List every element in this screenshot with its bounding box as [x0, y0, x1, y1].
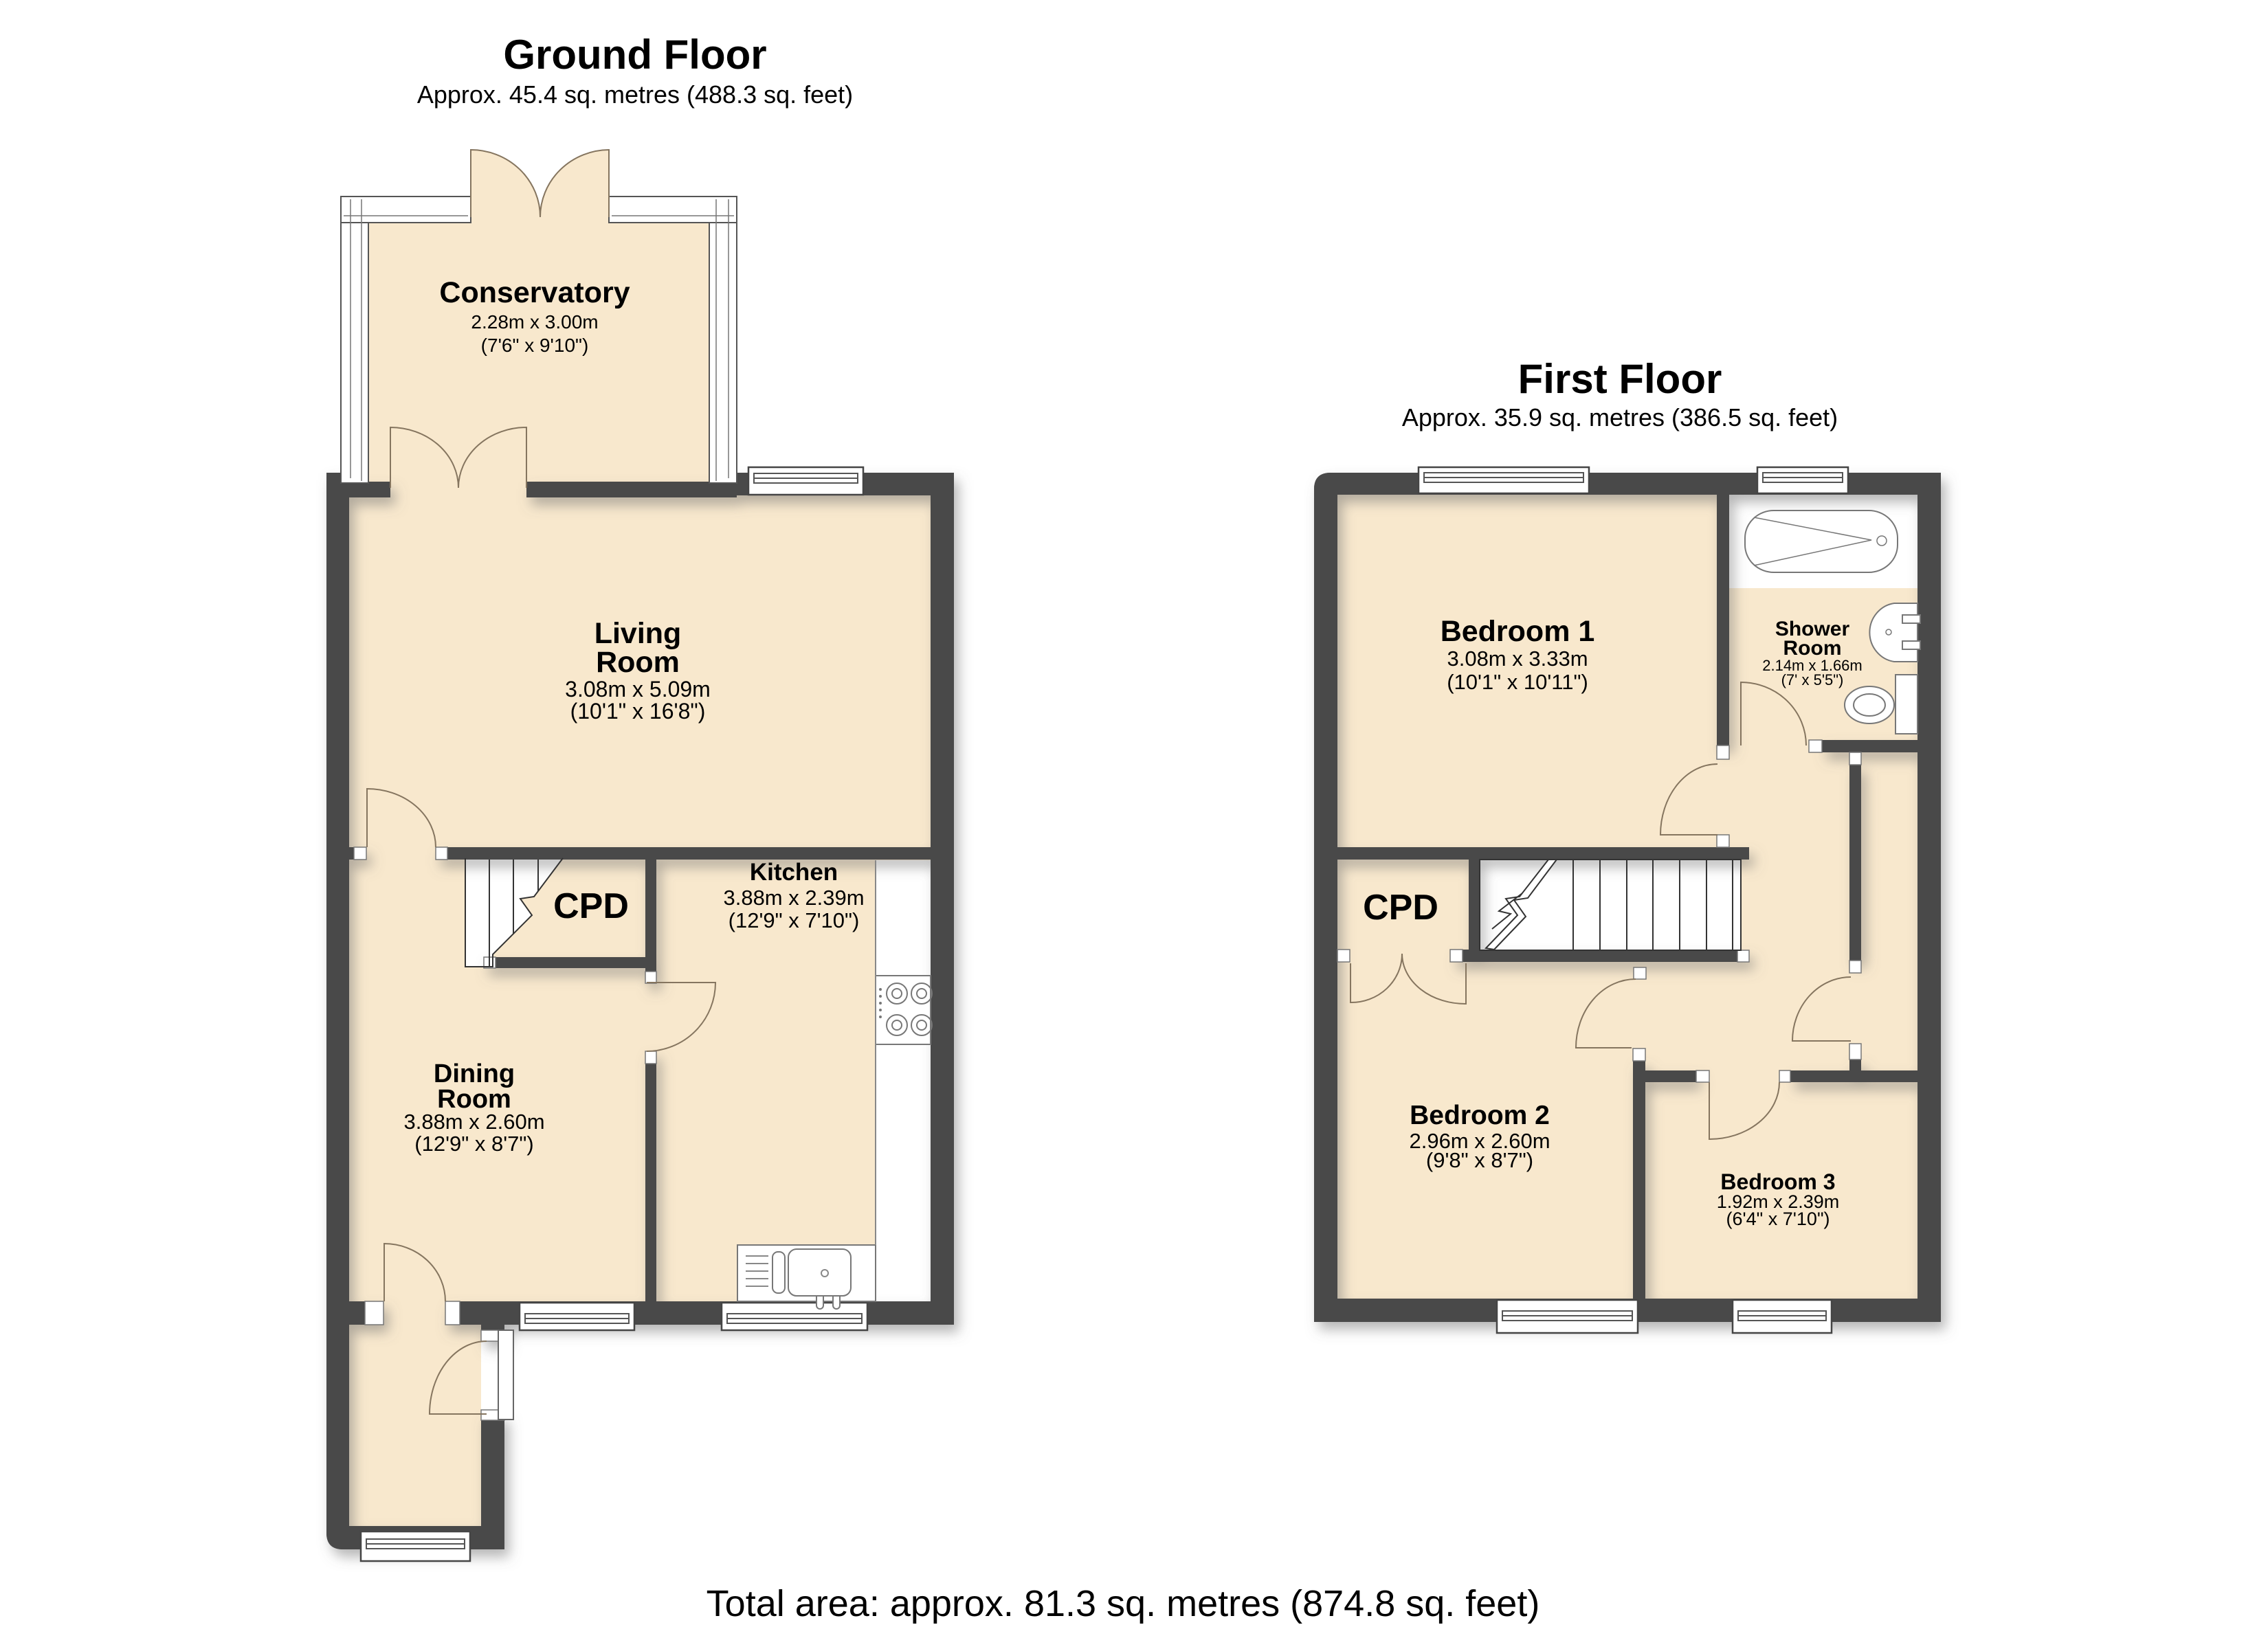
- svg-text:Ground Floor: Ground Floor: [503, 32, 766, 78]
- svg-text:Approx. 45.4 sq. metres (488.3: Approx. 45.4 sq. metres (488.3 sq. feet): [417, 80, 853, 109]
- svg-text:Approx. 35.9 sq. metres (386.5: Approx. 35.9 sq. metres (386.5 sq. feet): [1402, 403, 1838, 431]
- svg-text:Living: Living: [594, 617, 682, 650]
- svg-text:(7' x 5'5"): (7' x 5'5"): [1781, 671, 1844, 688]
- svg-text:(7'6" x 9'10"): (7'6" x 9'10"): [481, 335, 589, 356]
- svg-text:Conservatory: Conservatory: [439, 276, 630, 309]
- svg-text:CPD: CPD: [553, 886, 629, 926]
- svg-text:3.08m x 3.33m: 3.08m x 3.33m: [1447, 647, 1588, 671]
- svg-text:First Floor: First Floor: [1518, 356, 1722, 402]
- svg-text:(12'9" x 8'7"): (12'9" x 8'7"): [414, 1132, 533, 1156]
- svg-text:3.88m x 2.60m: 3.88m x 2.60m: [403, 1110, 544, 1134]
- svg-text:(6'4" x 7'10"): (6'4" x 7'10"): [1726, 1209, 1830, 1229]
- svg-text:Bedroom 2: Bedroom 2: [1410, 1101, 1550, 1130]
- svg-text:Bedroom 3: Bedroom 3: [1720, 1169, 1835, 1194]
- svg-text:Room: Room: [596, 646, 680, 679]
- svg-text:(9'8" x 8'7"): (9'8" x 8'7"): [1426, 1148, 1533, 1172]
- svg-text:(10'1" x 16'8"): (10'1" x 16'8"): [570, 699, 706, 723]
- svg-text:CPD: CPD: [1363, 888, 1438, 928]
- svg-text:Kitchen: Kitchen: [750, 859, 838, 886]
- svg-text:Total area: approx. 81.3 sq. m: Total area: approx. 81.3 sq. metres (874…: [707, 1583, 1540, 1624]
- svg-text:Dining: Dining: [434, 1059, 515, 1088]
- svg-text:(12'9" x 7'10"): (12'9" x 7'10"): [729, 908, 860, 932]
- svg-text:2.28m x 3.00m: 2.28m x 3.00m: [471, 311, 598, 333]
- svg-text:3.08m x 5.09m: 3.08m x 5.09m: [565, 677, 711, 702]
- svg-text:(10'1" x 10'11"): (10'1" x 10'11"): [1447, 670, 1588, 694]
- svg-text:Bedroom 1: Bedroom 1: [1441, 615, 1595, 648]
- svg-text:3.88m x 2.39m: 3.88m x 2.39m: [723, 886, 864, 910]
